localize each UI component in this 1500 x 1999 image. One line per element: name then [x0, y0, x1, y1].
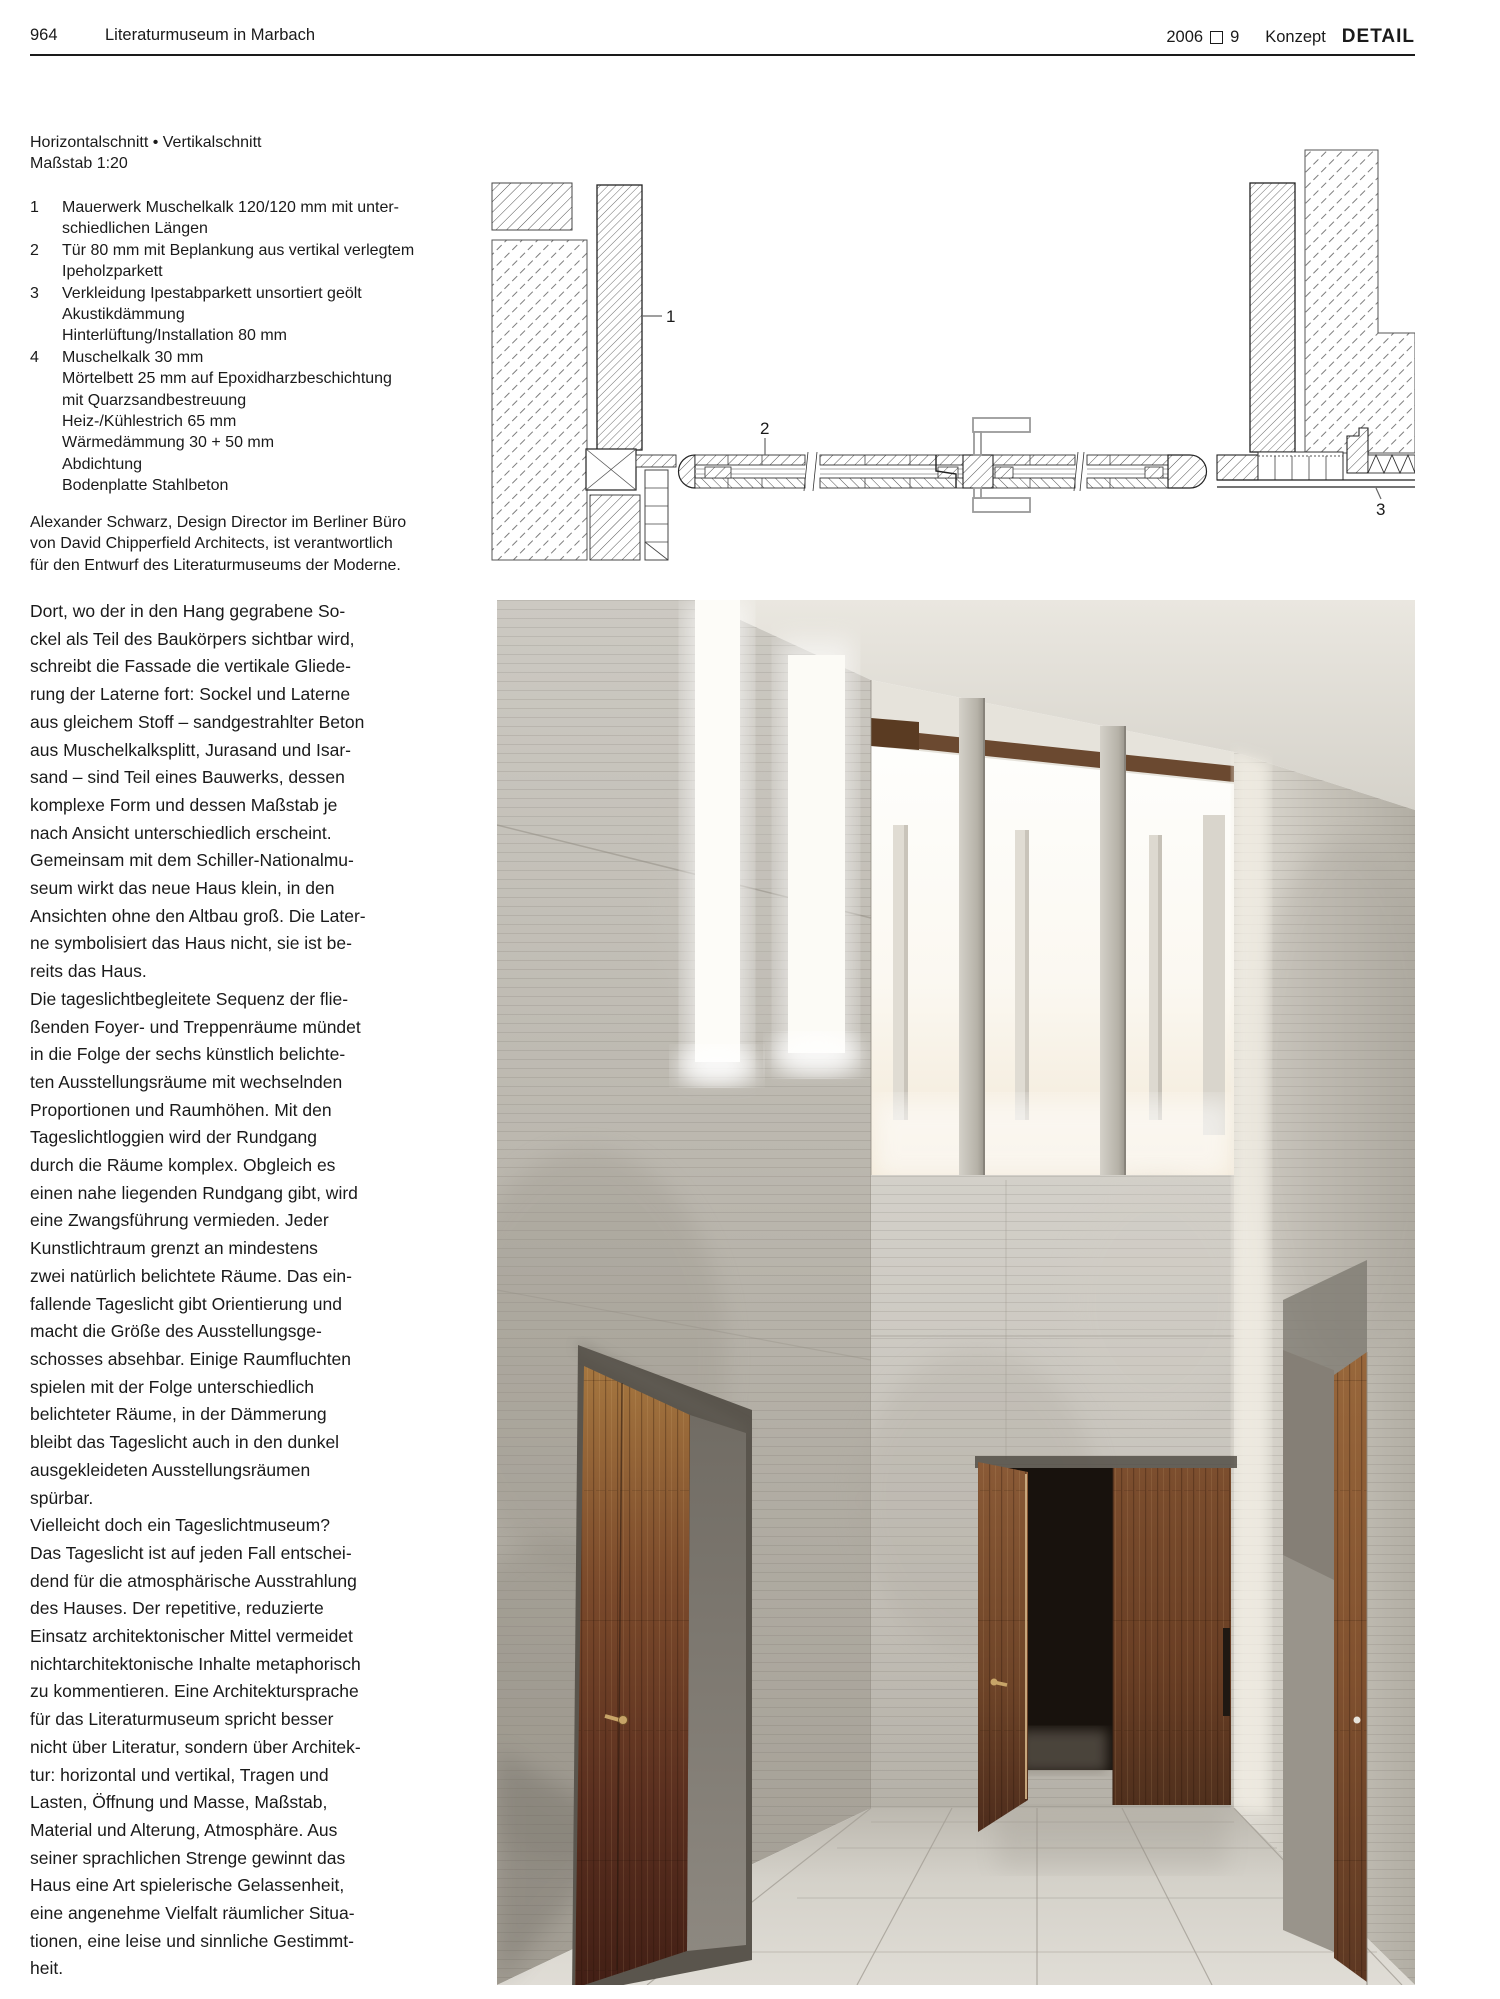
door-leaf-section — [679, 418, 1207, 512]
page-title: Literaturmuseum in Marbach — [105, 26, 315, 45]
drawing-label-2: 2 — [760, 419, 769, 438]
legend-item: 2 Tür 80 mm mit Beplankung aus vertikal … — [30, 240, 422, 283]
right-wood-door — [1283, 1260, 1367, 1985]
article-paragraph: Die tageslichtbegleitete Sequenz der fli… — [30, 986, 366, 1512]
legend-item-number: 2 — [30, 240, 62, 283]
drawing-caption: Horizontalschnitt • Vertikalschnitt Maßs… — [30, 132, 261, 175]
legend-item-number: 3 — [30, 283, 62, 347]
legend-item-number: 1 — [30, 197, 62, 240]
issue-square-icon — [1210, 31, 1223, 44]
drawing-legend: 1 Mauerwerk Muschelkalk 120/120 mm mit u… — [30, 197, 422, 497]
legend-item-text: Mauerwerk Muschelkalk 120/120 mm mit unt… — [62, 197, 422, 240]
daylight-slot — [788, 655, 845, 1053]
legend-item-text: Tür 80 mm mit Beplankung aus vertikal ve… — [62, 240, 422, 283]
legend-item-text: Verkleidung Ipestabparkett unsortiert ge… — [62, 283, 422, 347]
legend-item: 4 Muschelkalk 30 mm Mörtelbett 25 mm auf… — [30, 347, 422, 497]
drawing-label-1: 1 — [666, 307, 675, 326]
legend-item-number: 4 — [30, 347, 62, 497]
issue-number: 9 — [1230, 28, 1239, 47]
header-rule — [30, 54, 1415, 56]
door-pull-bar — [1223, 1628, 1230, 1716]
interior-photo — [497, 600, 1415, 1985]
magazine-page: 964 Literaturmuseum in Marbach 20069 Kon… — [0, 0, 1500, 1999]
section-detail-drawing: 1 2 3 — [490, 140, 1415, 565]
drawing-label-3: 3 — [1376, 500, 1385, 519]
left-wood-door — [572, 1345, 752, 1985]
architect-credit: Alexander Schwarz, Design Director im Be… — [30, 512, 406, 576]
door-handle — [1354, 1717, 1361, 1724]
section-label: Konzept — [1265, 28, 1326, 47]
legend-item-text: Muschelkalk 30 mm Mörtelbett 25 mm auf E… — [62, 347, 422, 497]
issue-year: 2006 — [1166, 28, 1203, 47]
article-text: Dort, wo der in den Hang gegrabene So- c… — [30, 598, 366, 1983]
wall-right-assembly — [1217, 150, 1415, 487]
page-number: 964 — [30, 26, 58, 45]
daylight-slot — [695, 600, 740, 1062]
wall-left-assembly — [492, 183, 676, 560]
legend-item: 1 Mauerwerk Muschelkalk 120/120 mm mit u… — [30, 197, 422, 240]
article-paragraph: Dort, wo der in den Hang gegrabene So- c… — [30, 598, 366, 986]
legend-item: 3 Verkleidung Ipestabparkett unsortiert … — [30, 283, 422, 347]
header-issue-block: 20069 Konzept DETAIL — [1166, 26, 1415, 48]
brand-logo: DETAIL — [1342, 26, 1415, 48]
article-paragraph: Vielleicht doch ein Tageslichtmuseum? Da… — [30, 1512, 366, 1983]
